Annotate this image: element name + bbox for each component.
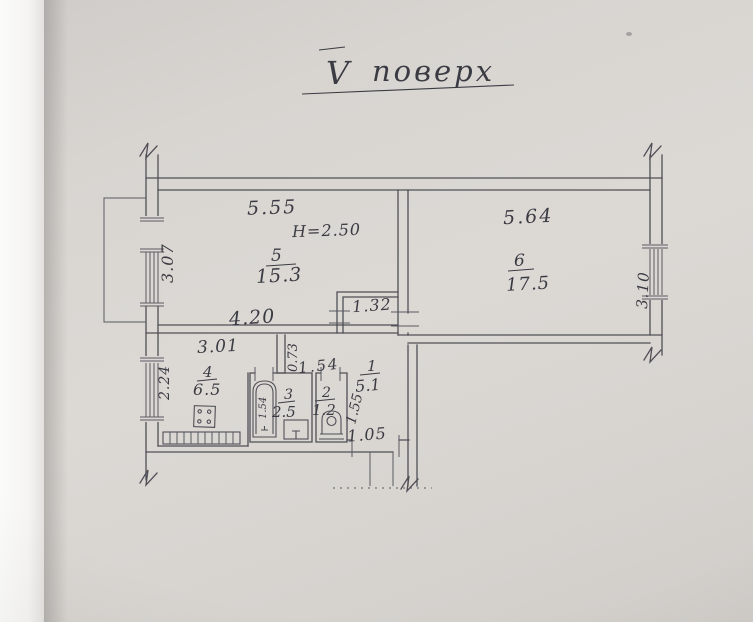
balcony-outline (104, 198, 146, 322)
dim-room6-window: 3.10 (633, 271, 653, 309)
room5-number: 5 (271, 246, 282, 266)
dim-bath-width: 1.54 (297, 355, 340, 377)
door-jamb (391, 312, 419, 326)
dim-room5-window: 3.07 (158, 243, 177, 283)
radiator-icon (163, 432, 240, 444)
title-overbar (319, 47, 345, 50)
wall-break-icon (644, 143, 661, 158)
wall-break-icon (644, 347, 661, 362)
dim-kitchen-window: 2.24 (157, 365, 173, 401)
room5-area: 15.3 (255, 264, 302, 288)
washbasin-icon (284, 420, 308, 439)
wall-break-icon (140, 470, 157, 485)
interior-walls (146, 190, 662, 446)
title-floor-word: поверх (372, 54, 495, 88)
dim-ceiling-height: H=2.50 (291, 220, 362, 241)
door-jamb (255, 367, 273, 381)
hallway-area: 5.1 (354, 375, 381, 396)
dim-entry-door-width: 1.05 (346, 423, 387, 445)
kitchen-area: 6.5 (193, 380, 221, 399)
dim-kitchen-width: 3.01 (197, 336, 240, 358)
exterior-walls (146, 155, 662, 480)
dim-room5-width-top: 5.55 (247, 196, 298, 220)
bathroom-number: 3 (284, 387, 293, 403)
wall-break-icon (401, 476, 418, 491)
wall-break-icon (140, 143, 157, 158)
dim-bathtub-length: 1.54 (258, 397, 269, 419)
scanned-floor-plan-photo: V поверх (0, 0, 753, 622)
floor-plan: V поверх (0, 0, 753, 622)
bathroom-area: 2.5 (271, 403, 296, 421)
door-jamb (329, 311, 350, 323)
dim-room5-width-bottom: 4.20 (227, 305, 276, 330)
wc-number: 2 (321, 385, 331, 401)
dim-room6-width-top: 5.64 (503, 205, 554, 230)
wc-area: 1.2 (312, 401, 336, 419)
room6-number: 6 (514, 251, 525, 271)
dim-niche-width: 1.32 (351, 295, 392, 317)
paper-speck (626, 32, 632, 36)
title-floor-numeral: V (326, 54, 352, 92)
room6-area: 17.5 (506, 273, 551, 296)
hallway-number: 1 (367, 357, 377, 375)
stove-icon (194, 406, 216, 428)
kitchen-number: 4 (202, 363, 213, 381)
